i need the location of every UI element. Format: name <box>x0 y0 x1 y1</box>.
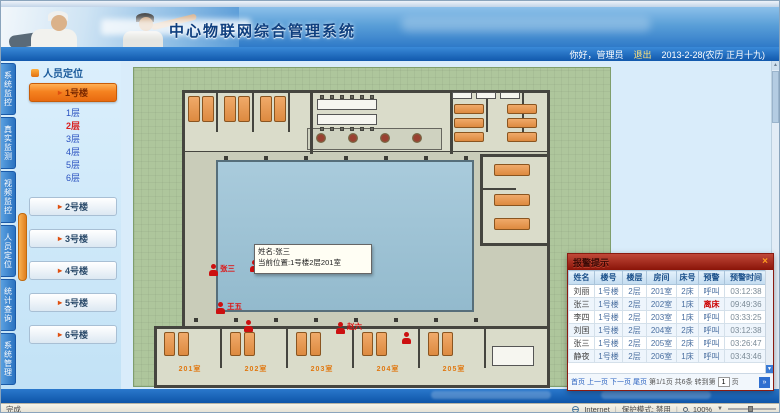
floor-list: 1层2层3层4层5层6层 <box>29 106 117 184</box>
bed-icon <box>376 332 387 356</box>
wall-segment <box>450 90 453 154</box>
alarm-cell: 03:12:38 <box>725 285 768 298</box>
greeting-text: 你好，管理员 <box>569 48 623 61</box>
alarm-table-body: 刘丽1号楼2层201室2床呼叫03:12:38张三1号楼2层202室1床离床09… <box>569 285 768 363</box>
bed-icon <box>188 96 200 122</box>
person-tooltip: 姓名:张三 当前位置:1号楼2层201室 <box>254 244 372 274</box>
alarm-table: 姓名楼号楼层房间床号预警预警时间 刘丽1号楼2层201室2床呼叫03:12:38… <box>568 270 768 363</box>
sidebar-tab-2[interactable]: 真实监测 <box>1 117 16 169</box>
column-dot <box>384 156 388 160</box>
panel-header: 人员定位 <box>31 65 119 80</box>
chair-icon <box>320 95 324 99</box>
alarm-cell: 呼叫 <box>699 324 725 337</box>
sidebar: 系统监控真实监测视频监控人员定位统计查询系统管理 人员定位 ▸1号楼 1层2层3… <box>1 61 121 389</box>
wall-segment <box>288 90 290 132</box>
alarm-cell: 1号楼 <box>595 311 623 324</box>
floor-item-5[interactable]: 5层 <box>29 158 117 171</box>
separator: | <box>676 405 678 413</box>
building-button-label: 5号楼 <box>65 296 88 309</box>
chevron-icon: ▸ <box>58 235 62 243</box>
room-label-4: 204室 <box>358 364 418 374</box>
sidebar-tab-4[interactable]: 人员定位 <box>1 225 16 277</box>
marker-body <box>216 308 225 314</box>
zoom-level: 100% <box>693 405 712 413</box>
floor-item-1[interactable]: 1层 <box>29 106 117 119</box>
goto-label: 转到第 <box>695 377 716 387</box>
column-dot <box>304 156 308 160</box>
close-icon[interactable]: × <box>762 257 768 267</box>
alarm-col-header: 姓名 <box>569 271 595 285</box>
marker-body <box>209 270 218 276</box>
sidebar-tab-5[interactable]: 统计查询 <box>1 279 16 331</box>
wall-segment <box>252 90 254 132</box>
wall-segment <box>310 90 313 154</box>
plant-icon <box>412 133 422 143</box>
alarm-cell: 205室 <box>647 337 677 350</box>
sidebar-tab-3[interactable]: 视频监控 <box>1 171 16 223</box>
alarm-cell: 2层 <box>623 324 647 337</box>
column-dot <box>224 156 228 160</box>
bed-icon <box>454 132 484 142</box>
alarm-cell: 2床 <box>677 324 699 337</box>
alarm-panel-titlebar: 报警提示 × <box>568 254 773 270</box>
column-dot <box>464 156 468 160</box>
bed-icon <box>296 332 307 356</box>
person-marker-1[interactable] <box>209 264 218 276</box>
chevron-icon: ▸ <box>58 267 62 275</box>
alarm-cell: 呼叫 <box>699 337 725 350</box>
chevron-icon: ▸ <box>58 203 62 211</box>
footer-highlight <box>601 391 711 399</box>
app-window: 中心物联网综合管理系统 你好，管理员 退出 2013-2-28(农历 正月十九)… <box>0 0 780 413</box>
building-button-label: 6号楼 <box>65 328 88 341</box>
alarm-cell: 03:26:47 <box>725 337 768 350</box>
bed-icon <box>178 332 189 356</box>
chair-icon <box>340 95 344 99</box>
alarm-cell: 李四 <box>569 311 595 324</box>
floor-item-3[interactable]: 3层 <box>29 132 117 145</box>
bed-icon <box>507 132 537 142</box>
person-marker-label: 赵六 <box>347 321 362 332</box>
person-marker-5[interactable] <box>336 322 345 334</box>
table-icon <box>500 92 520 99</box>
wall-segment <box>484 326 486 368</box>
photo-person-body <box>31 29 77 47</box>
room-label-1: 201室 <box>160 364 220 374</box>
marker-head <box>246 320 251 325</box>
alarm-row[interactable]: 张三1号楼2层205室2床呼叫03:26:47 <box>569 337 768 350</box>
alarm-cell: 03:33:25 <box>725 311 768 324</box>
wall-segment <box>418 326 420 368</box>
chair-icon <box>350 95 354 99</box>
chair-icon <box>330 95 334 99</box>
alarm-pagination: 首页 上一页 下一页 尾页 第1/1页 共6条 转到第 页 » <box>568 373 773 390</box>
alarm-cell: 1床 <box>677 311 699 324</box>
column-dot <box>274 318 278 322</box>
person-marker-label: 王五 <box>227 301 242 312</box>
alarm-cell: 呼叫 <box>699 285 725 298</box>
alarm-cell: 张三 <box>569 337 595 350</box>
page-last-link[interactable]: 尾页 <box>633 377 647 387</box>
alarm-cell: 2层 <box>623 285 647 298</box>
marker-body <box>402 338 411 344</box>
bed-icon <box>310 332 321 356</box>
column-dot <box>394 318 398 322</box>
alarm-cell: 2床 <box>677 285 699 298</box>
building-buttons-rest: ▸2号楼▸3号楼▸4号楼▸5号楼▸6号楼 <box>29 197 117 344</box>
alarm-cell: 呼叫 <box>699 350 725 363</box>
info-bar: 你好，管理员 退出 2013-2-28(农历 正月十九) <box>1 47 780 61</box>
alarm-row[interactable]: 刘国1号楼2层204室2床呼叫03:12:38 <box>569 324 768 337</box>
table-icon <box>452 92 472 99</box>
alarm-cell: 204室 <box>647 324 677 337</box>
room-label-3: 203室 <box>292 364 352 374</box>
table-icon <box>317 99 377 110</box>
alarm-cell: 1床 <box>677 298 699 311</box>
bed-icon <box>442 332 453 356</box>
panel-title: 人员定位 <box>43 65 83 80</box>
chair-icon <box>370 127 374 131</box>
alarm-cell: 2床 <box>677 337 699 350</box>
alarm-cell: 呼叫 <box>699 311 725 324</box>
status-right-group: Internet | 保护模式: 禁用 | 100% ▼ <box>572 404 776 413</box>
scrollbar-thumb[interactable] <box>772 71 779 123</box>
marker-head <box>404 332 409 337</box>
alarm-col-header: 楼层 <box>623 271 647 285</box>
chair-icon <box>340 127 344 131</box>
chair-icon <box>360 95 364 99</box>
wall-segment <box>220 326 222 368</box>
building-button-label: 1号楼 <box>65 86 88 99</box>
building-button-1-selected[interactable]: ▸1号楼 <box>29 83 117 102</box>
building-button-2[interactable]: ▸2号楼 <box>29 197 117 216</box>
plan-courtyard-pool <box>216 160 474 312</box>
wall-segment <box>286 326 288 368</box>
wall-segment <box>480 188 516 190</box>
alarm-col-header: 房间 <box>647 271 677 285</box>
bed-icon <box>274 96 286 122</box>
alarm-cell: 1号楼 <box>595 285 623 298</box>
bed-icon <box>428 332 439 356</box>
marker-head <box>338 322 343 327</box>
chevron-icon: ▸ <box>58 89 62 97</box>
building-column: ▸1号楼 1层2层3层4层5层6层 ▸2号楼▸3号楼▸4号楼▸5号楼▸6号楼 <box>29 83 117 344</box>
alarm-table-head: 姓名楼号楼层房间床号预警预警时间 <box>569 271 768 285</box>
bed-icon <box>454 104 484 114</box>
column-dot <box>424 156 428 160</box>
chevron-icon: ▸ <box>58 331 62 339</box>
chevron-icon: ▸ <box>58 299 62 307</box>
date-text: 2013-2-28(农历 正月十九) <box>661 48 765 61</box>
footer-highlight <box>431 391 551 399</box>
bed-icon <box>494 194 530 206</box>
page-number-input[interactable] <box>718 377 730 387</box>
banner-highlight <box>401 17 651 32</box>
alarm-panel: 报警提示 × 姓名楼号楼层房间床号预警预警时间 刘丽1号楼2层201室2床呼叫0… <box>567 253 774 391</box>
chair-icon <box>360 127 364 131</box>
marker-head <box>218 302 223 307</box>
room-label-2: 202室 <box>226 364 286 374</box>
marker-body <box>336 328 345 334</box>
column-dot <box>434 318 438 322</box>
column-dot <box>344 156 348 160</box>
alarm-row[interactable]: 张三1号楼2层202室1床离床09:49:36 <box>569 298 768 311</box>
person-icon <box>31 69 39 77</box>
bed-icon <box>507 118 537 128</box>
alarm-cell: 2层 <box>623 337 647 350</box>
sidebar-tabs: 系统监控真实监测视频监控人员定位统计查询系统管理 <box>1 63 16 385</box>
room-label-5: 205室 <box>424 364 484 374</box>
chair-icon <box>330 127 334 131</box>
bed-icon <box>260 96 272 122</box>
alarm-row[interactable]: 静夜1号楼2层206室1床呼叫03:43:46 <box>569 350 768 363</box>
wall-segment <box>352 326 354 368</box>
alarm-row[interactable]: 李四1号楼2层203室1床呼叫03:33:25 <box>569 311 768 324</box>
floor-item-6[interactable]: 6层 <box>29 171 117 184</box>
alarm-panel-title: 报警提示 <box>573 256 609 269</box>
alarm-scrollbar[interactable]: ▼ <box>765 270 773 374</box>
alarm-cell: 203室 <box>647 311 677 324</box>
chair-icon <box>350 127 354 131</box>
tooltip-line2: 当前位置:1号楼2层201室 <box>258 258 368 269</box>
alarm-cell: 张三 <box>569 298 595 311</box>
column-dot <box>194 318 198 322</box>
goto-button[interactable]: » <box>759 377 770 388</box>
sidebar-tab-1[interactable]: 系统监控 <box>1 63 16 115</box>
column-dot <box>314 318 318 322</box>
alarm-cell: 09:49:36 <box>725 298 768 311</box>
zoom-slider[interactable] <box>728 408 776 410</box>
header-banner: 中心物联网综合管理系统 <box>1 7 780 47</box>
alarm-cell: 202室 <box>647 298 677 311</box>
alarm-col-header: 楼号 <box>595 271 623 285</box>
logout-link[interactable]: 退出 <box>633 48 651 61</box>
bed-icon <box>507 104 537 114</box>
protect-mode-label: 保护模式: 禁用 <box>622 404 671 413</box>
page-unit-label: 页 <box>732 377 739 387</box>
building-buttons-top: ▸1号楼 <box>29 83 117 102</box>
alarm-col-header: 预警 <box>699 271 725 285</box>
alarm-cell: 2层 <box>623 311 647 324</box>
zone-label: Internet <box>584 405 609 413</box>
bed-icon <box>230 332 241 356</box>
zoom-dropdown-icon[interactable]: ▼ <box>717 406 723 412</box>
building-button-6[interactable]: ▸6号楼 <box>29 325 117 344</box>
bed-icon <box>494 218 530 230</box>
alarm-cell: 刘丽 <box>569 285 595 298</box>
page-title: 中心物联网综合管理系统 <box>169 20 356 41</box>
building-button-label: 4号楼 <box>65 264 88 277</box>
plant-icon <box>380 133 390 143</box>
alarm-cell: 离床 <box>699 298 725 311</box>
bed-icon <box>164 332 175 356</box>
bed-icon <box>362 332 373 356</box>
floor-plan: 姓名:张三 当前位置:1号楼2层201室 张三李四王五赵六201室202室203… <box>133 67 611 387</box>
sidebar-tab-6[interactable]: 系统管理 <box>1 333 16 385</box>
alarm-row[interactable]: 刘丽1号楼2层201室2床呼叫03:12:38 <box>569 285 768 298</box>
chair-icon <box>320 127 324 131</box>
alarm-cell: 1号楼 <box>595 337 623 350</box>
bed-icon <box>494 164 530 176</box>
alarm-cell: 03:43:46 <box>725 350 768 363</box>
table-icon <box>476 92 496 99</box>
bed-icon <box>454 118 484 128</box>
plant-icon <box>348 133 358 143</box>
column-dot <box>264 156 268 160</box>
bed-icon <box>224 96 236 122</box>
column-dot <box>234 318 238 322</box>
separator: | <box>615 405 617 413</box>
building-button-label: 3号楼 <box>65 232 88 245</box>
person-marker-4[interactable] <box>244 320 253 332</box>
person-marker-6[interactable] <box>402 332 411 344</box>
alarm-cell: 03:12:38 <box>725 324 768 337</box>
wall-segment <box>216 90 218 132</box>
alarm-cell: 静夜 <box>569 350 595 363</box>
internet-zone-icon <box>572 406 579 413</box>
alarm-cell: 1号楼 <box>595 324 623 337</box>
building-button-5[interactable]: ▸5号楼 <box>29 293 117 312</box>
building-button-3[interactable]: ▸3号楼 <box>29 229 117 248</box>
floor-item-4[interactable]: 4层 <box>29 145 117 158</box>
page-next-link[interactable]: 下一页 <box>610 377 631 387</box>
alarm-col-header: 床号 <box>677 271 699 285</box>
building-button-4[interactable]: ▸4号楼 <box>29 261 117 280</box>
scroll-up-icon[interactable]: ▲ <box>772 61 779 70</box>
page-first-link[interactable]: 首页 <box>571 377 585 387</box>
alarm-cell: 201室 <box>647 285 677 298</box>
alarm-cell: 1号楼 <box>595 350 623 363</box>
alarm-cell: 刘国 <box>569 324 595 337</box>
status-bar: 完成 Internet | 保护模式: 禁用 | 100% ▼ <box>1 403 780 413</box>
bed-icon <box>244 332 255 356</box>
alarm-cell: 206室 <box>647 350 677 363</box>
person-marker-3[interactable] <box>216 302 225 314</box>
tooltip-line1: 姓名:张三 <box>258 247 368 258</box>
table-icon <box>317 114 377 125</box>
alarm-cell: 2层 <box>623 350 647 363</box>
chair-icon <box>370 95 374 99</box>
alarm-col-header: 预警时间 <box>725 271 768 285</box>
marker-body <box>244 326 253 332</box>
alarm-cell: 2层 <box>623 298 647 311</box>
zoom-slider-knob[interactable] <box>748 406 753 412</box>
bed-icon <box>238 96 250 122</box>
table-icon <box>492 346 534 366</box>
zoom-magnifier-icon <box>683 407 688 412</box>
floor-item-2[interactable]: 2层 <box>29 119 117 132</box>
photo-person-head <box>51 15 67 31</box>
building-button-label: 2号楼 <box>65 200 88 213</box>
person-marker-label: 张三 <box>220 263 235 274</box>
sidebar-collapse-handle[interactable] <box>18 213 27 281</box>
alarm-cell: 1号楼 <box>595 298 623 311</box>
status-left-text: 完成 <box>6 404 21 413</box>
alarm-cell: 1床 <box>677 350 699 363</box>
plant-icon <box>316 133 326 143</box>
marker-head <box>211 264 216 269</box>
bed-icon <box>202 96 214 122</box>
page-info: 第1/1页 共6条 <box>649 377 693 387</box>
page-prev-link[interactable]: 上一页 <box>587 377 608 387</box>
column-dot <box>474 318 478 322</box>
